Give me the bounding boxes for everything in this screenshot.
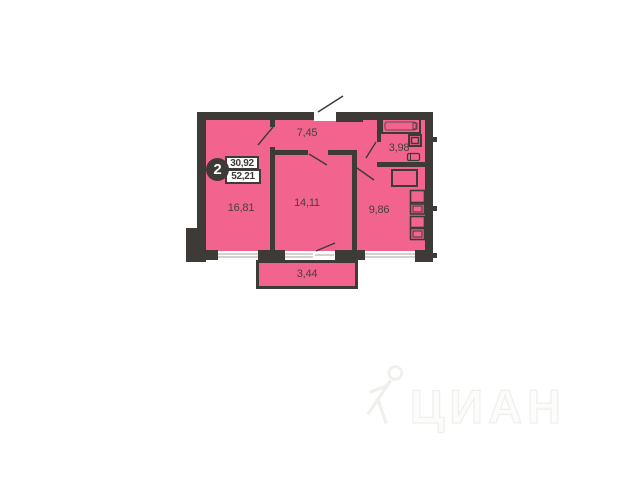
living-area-badge: 30,92 (225, 156, 259, 170)
bedroom-door-swing (309, 154, 327, 165)
wall-tick-2 (433, 206, 437, 211)
room-count-badge: 2 (206, 158, 229, 181)
bathtub-inner-icon (385, 122, 416, 130)
wall-tick-1 (433, 137, 437, 142)
kitchen-door-swing (357, 168, 374, 180)
total-area-badge: 52,21 (225, 169, 261, 184)
entrance-door-opening (314, 110, 336, 121)
bathroom-door-swing (366, 142, 376, 158)
balcony-door-swing (316, 243, 335, 251)
kitchen-stove-burners-icon (413, 231, 422, 237)
entrance-door-swing (318, 96, 343, 112)
plan-overlay (0, 0, 640, 480)
wall-tick-3 (433, 253, 437, 258)
balcony-window (285, 251, 313, 259)
kitchen-fridge-icon (411, 217, 425, 228)
kitchen-counter-icon (411, 191, 425, 203)
livingroom-door-swing (258, 127, 273, 145)
floorplan-canvas: ЦИАН (0, 0, 640, 480)
kitchen-sink-basin-icon (413, 206, 422, 212)
toilet-icon (408, 154, 420, 161)
bathtub-icon (382, 119, 420, 133)
washer-drum-icon (412, 138, 419, 144)
kitchen-window (365, 251, 415, 259)
livingroom-window (218, 251, 258, 259)
